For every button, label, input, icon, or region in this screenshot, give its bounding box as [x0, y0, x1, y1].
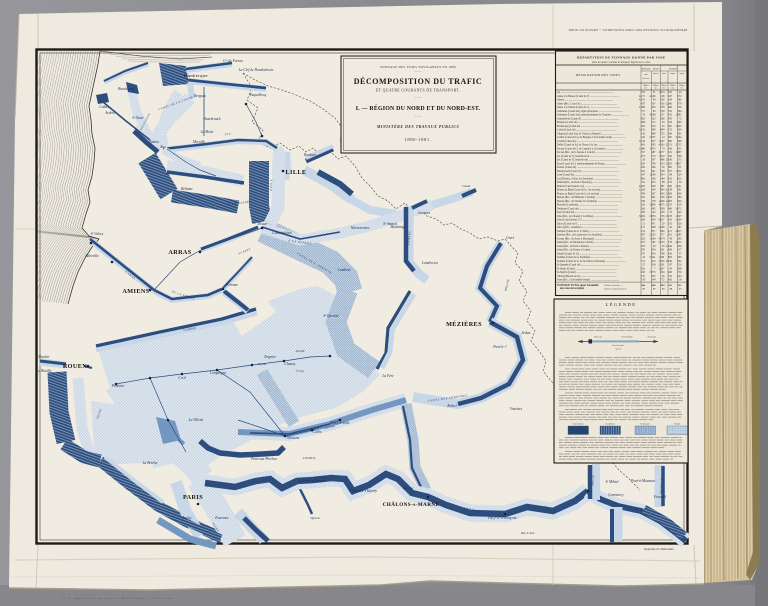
svg-text:Rethel: Rethel: [446, 404, 456, 408]
svg-text:Duclair: Duclair: [37, 355, 50, 359]
svg-text:Chiffres proportionnels: Chiffres proportionnels: [604, 288, 626, 291]
svg-text:Pontoise: Pontoise: [111, 384, 125, 388]
svg-text:Somme (Canal de la, maritime): Somme (Canal de la, maritime) ..........…: [557, 256, 682, 259]
svg-text:Sedan: Sedan: [522, 331, 531, 335]
svg-text:DÉSIGNATION DES VOIES: DÉSIGNATION DES VOIES: [576, 72, 621, 77]
svg-text:Valenciennes: Valenciennes: [351, 226, 370, 230]
svg-text:Janville: Janville: [295, 349, 305, 353]
svg-text:La Brèche: La Brèche: [142, 461, 158, 465]
svg-text:St Quentin: St Quentin: [324, 314, 339, 318]
svg-text:Creil: Creil: [178, 376, 185, 380]
svg-text:Givet: Givet: [506, 236, 515, 240]
svg-text:Oise (Riv., de Chauny à Confla: Oise (Riv., de Chauny à Conflans) ......…: [557, 215, 682, 218]
svg-text:Colme (Canal de la), de Bergue: Colme (Canal de la), de Bergues à la fro…: [557, 136, 682, 139]
svg-text:L'OURCQ: L'OURCQ: [302, 456, 316, 460]
svg-text:Aisne à la Marne (Canal de l'): Aisne à la Marne (Canal de l') .........…: [557, 106, 682, 109]
svg-text:Transit: Transit: [674, 424, 681, 426]
svg-text:———: ———: [413, 96, 422, 99]
svg-text:Celles: Celles: [313, 430, 323, 434]
svg-text:Descente: Descente: [594, 337, 602, 339]
svg-text:Seine (Riv., de Montereau à Pa: Seine (Riv., de Montereau à Paris) .....…: [557, 241, 682, 244]
svg-text:MARNE: MARNE: [313, 476, 326, 480]
svg-text:La Villette: La Villette: [188, 418, 204, 422]
svg-text:PARIS: PARIS: [183, 494, 203, 501]
svg-text:Pont-aux-Perches: Pont-aux-Perches: [250, 457, 277, 461]
svg-text:Béthune: Béthune: [181, 187, 193, 191]
svg-text:Clignon (Canal du), de l'Ourcq: Clignon (Canal du), de l'Ourcq à Mareuil…: [557, 132, 682, 135]
svg-text:Exportations: Exportations: [572, 424, 583, 426]
svg-text:Bergues: Bergues: [194, 94, 206, 98]
svg-text:Merville: Merville: [192, 140, 206, 144]
svg-text:Seine (Riv., de Paris à Rouen): Seine (Riv., de Paris à Rouen) .........…: [557, 245, 682, 248]
svg-text:La Motte: La Motte: [199, 130, 213, 134]
svg-text:TRAFIC: TRAFIC: [653, 68, 660, 71]
svg-text:Seine (Riv., de Rouen à la mer: Seine (Riv., de Rouen à la mer) ........…: [557, 249, 682, 252]
svg-text:La Bouille: La Bouille: [35, 369, 51, 373]
svg-text:RÉPARTITION DU TONNAGE DES VOI: RÉPARTITION DU TONNAGE DES VOIES NAVIGAB…: [568, 28, 687, 33]
svg-text:CHÂLONS-s-MARNE: CHÂLONS-s-MARNE: [383, 500, 440, 508]
svg-text:RÉPARTITION DU TONNAGE DONNÉ P: RÉPARTITION DU TONNAGE DONNÉ PAR VOIE: [577, 55, 666, 60]
svg-text:Péronne: Péronne: [225, 283, 238, 287]
svg-text:ROUEN: ROUEN: [63, 363, 87, 370]
svg-text:TRANSIT: TRANSIT: [669, 68, 678, 71]
svg-text:Scarpe (Riv., de Arras à Morta: Scarpe (Riv., de Arras à Mortagne) .....…: [557, 237, 682, 240]
svg-text:———: ———: [413, 115, 422, 118]
svg-text:TONNAGE: TONNAGE: [641, 68, 651, 71]
svg-text:Compiègne: Compiègne: [210, 371, 227, 375]
svg-text:Ardennes (Canal des), ligne pr: Ardennes (Canal des), ligne principale .…: [557, 110, 682, 113]
svg-text:Vigneux: Vigneux: [310, 516, 320, 520]
svg-text:entre les quatre courants de t: entre les quatre courants de transport f…: [592, 61, 651, 64]
svg-text:Calais: Calais: [99, 105, 109, 109]
svg-text:Commercy: Commercy: [608, 493, 624, 497]
svg-text:Meuse (Riv., de Mézières à Ver: Meuse (Riv., de Mézières à Verdun) .....…: [557, 196, 682, 199]
svg-text:Dunkerque: Dunkerque: [184, 73, 208, 78]
svg-text:Aire: Aire: [159, 145, 166, 149]
svg-text:ET QUATRE COURANTS DE TRANSPOR: ET QUATRE COURANTS DE TRANSPORT.: [376, 89, 460, 93]
svg-text:de la voie: de la voie: [643, 78, 650, 80]
svg-text:MINISTÈRE DES TRAVAUX PUBLICS: MINISTÈRE DES TRAVAUX PUBLICS: [376, 124, 460, 129]
svg-text:Soissons: Soissons: [287, 436, 300, 440]
svg-text:Douai: Douai: [257, 222, 267, 226]
svg-text:Bourbourg: Bourbourg: [118, 87, 134, 91]
svg-text:LILLE: LILLE: [286, 169, 307, 176]
svg-text:Marne au Rhin (Canal de la, 2e: Marne au Rhin (Canal de la, 2e section) …: [557, 192, 682, 195]
svg-text:Vitry-le-François: Vitry-le-François: [488, 515, 517, 520]
svg-text:TONNAGE DES VOIES NAVIGABLES E: TONNAGE DES VOIES NAVIGABLES EN 1880: [380, 65, 456, 69]
svg-text:Somme (Canal de la, de St-Vale: Somme (Canal de la, de St-Valery à Péron…: [557, 260, 682, 263]
svg-text:Sambre (Canal de la, à l'Oise): Sambre (Canal de la, à l'Oise) .........…: [557, 230, 682, 233]
svg-text:Conditions: Conditions: [605, 424, 615, 426]
svg-text:export.: export.: [680, 73, 685, 75]
svg-text:Marne (Riv., de Paris à Éperna: Marne (Riv., de Paris à Épernay) .......…: [557, 181, 682, 184]
svg-text:Remontée: Remontée: [648, 337, 657, 339]
svg-text:OISE: OISE: [296, 369, 305, 374]
svg-text:Frouard: Frouard: [653, 495, 666, 499]
svg-text:DEULE: DEULE: [270, 179, 273, 191]
svg-text:Château-Thierry: Château-Thierry: [349, 488, 377, 493]
svg-text:total: total: [644, 74, 648, 76]
svg-text:Vouziers: Vouziers: [510, 407, 523, 411]
svg-text:St Mihiel: St Mihiel: [606, 480, 619, 484]
svg-text:ARRAS: ARRAS: [168, 249, 191, 256]
svg-text:import.: import.: [671, 73, 676, 75]
svg-text:Remorqué: Remorqué: [640, 423, 649, 426]
svg-text:Amont: Amont: [615, 348, 621, 351]
svg-text:Sambre (Riv., de Landrecies à: Sambre (Riv., de Landrecies à la frontiè…: [557, 234, 682, 237]
svg-text:1880-1881.: 1880-1881.: [404, 137, 431, 142]
svg-text:Ardres: Ardres: [104, 111, 115, 115]
svg-text:Noyon: Noyon: [257, 362, 267, 366]
svg-text:Eure (Canal de l'), embranchem: Eure (Canal de l'), embranchement de Rou…: [557, 162, 682, 165]
svg-text:La Fère: La Fère: [381, 374, 394, 378]
svg-text:Ardennes (Canal des), embranch: Ardennes (Canal des), embranchement de V…: [557, 114, 682, 117]
svg-text:St Omer: St Omer: [132, 116, 144, 120]
svg-text:I. — RÉGION DU NORD ET DU NORD: I. — RÉGION DU NORD ET DU NORD-EST.: [356, 104, 481, 112]
svg-text:Courchelettes: Courchelettes: [272, 231, 292, 235]
svg-text:Bar-le-Duc: Bar-le-Duc: [521, 531, 535, 535]
svg-text:Épernay: Épernay: [402, 485, 414, 490]
svg-text:Hazebrouck: Hazebrouck: [202, 117, 221, 121]
svg-text:Escaut (Riv., de la Sensée à C: Escaut (Riv., de la Sensée à Condé) ....…: [557, 151, 682, 154]
svg-text:Imprimerie Nationale: Imprimerie Nationale: [643, 547, 674, 551]
svg-text:local: local: [662, 73, 666, 75]
svg-text:LYS: LYS: [225, 133, 232, 136]
svg-text:DÉCOMPOSITION DU TRAFIC: DÉCOMPOSITION DU TRAFIC: [354, 76, 483, 86]
svg-text:Condé: Condé: [462, 184, 471, 188]
svg-text:Chauny: Chauny: [284, 362, 296, 366]
svg-text:des voies de la région): des voies de la région): [560, 287, 584, 290]
svg-text:Essonnes: Essonnes: [214, 516, 229, 520]
svg-text:St Valery: St Valery: [91, 232, 104, 236]
svg-text:Meuse (Riv., de Verdun à la fr: Meuse (Riv., de Verdun à la frontière) .…: [557, 200, 682, 203]
svg-text:——: ——: [618, 308, 624, 311]
svg-text:AMIENS: AMIENS: [122, 288, 149, 295]
svg-text:———: ———: [413, 71, 422, 74]
svg-text:Landrecies: Landrecies: [421, 261, 438, 265]
svg-text:Roubaix: Roubaix: [303, 153, 316, 157]
svg-text:Maubeuge: Maubeuge: [389, 225, 406, 229]
svg-text:Watten: Watten: [149, 140, 159, 144]
svg-text:Pont-le-?: Pont-le-?: [492, 345, 507, 349]
svg-text:Cambrai: Cambrai: [338, 268, 351, 272]
svg-text:Jeumont: Jeumont: [418, 211, 431, 215]
svg-text:MÉZIÈRES: MÉZIÈRES: [446, 320, 482, 328]
svg-text:intérieur: intérieur: [653, 73, 659, 75]
svg-text:Deûle (Canal de la), de Douai: Deûle (Canal de la), de Douai à la Lys .…: [557, 144, 682, 147]
svg-text:Abbeville: Abbeville: [84, 254, 99, 258]
svg-text:Tergnier: Tergnier: [264, 355, 277, 359]
svg-text:La Clef de Hondschoote: La Clef de Hondschoote: [238, 68, 274, 72]
svg-text:Vers la rivière: Vers la rivière: [612, 345, 624, 347]
svg-text:Esquelbecq: Esquelbecq: [249, 93, 267, 97]
svg-text:LÉGENDE: LÉGENDE: [606, 302, 637, 307]
svg-text:Trait médian: Trait médian: [621, 337, 633, 339]
svg-text:Juvisy: Juvisy: [183, 516, 192, 520]
svg-text:Escaut (Canal de l'), de Cambr: Escaut (Canal de l'), de Cambrai à la fr…: [557, 147, 682, 150]
svg-text:Pont-à-Mousson: Pont-à-Mousson: [630, 479, 655, 483]
svg-text:Marne au Rhin (Canal de la, 1r: Marne au Rhin (Canal de la, 1re section)…: [557, 189, 682, 192]
svg-text:21 b. Spécialités premières. D: 21 b. Spécialités premières. David Rumse…: [62, 598, 173, 600]
